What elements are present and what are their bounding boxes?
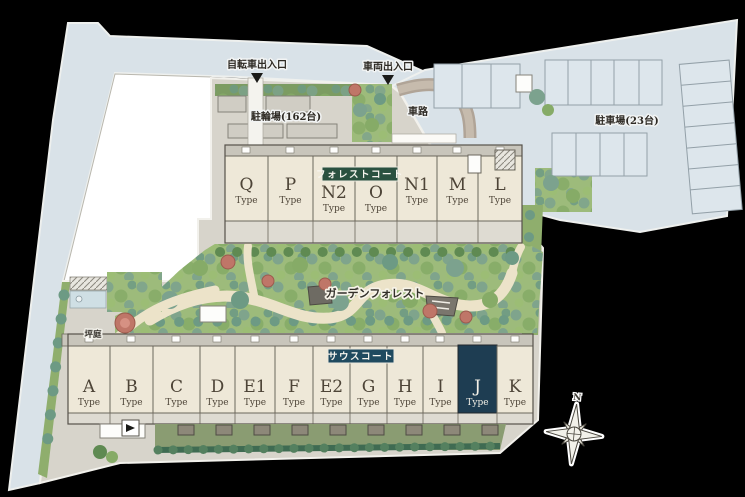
svg-text:Type: Type: [120, 398, 142, 408]
svg-text:B: B: [125, 377, 138, 397]
unit-cell-k[interactable]: K Type: [497, 346, 533, 413]
red-tree: [423, 304, 437, 318]
unit-cell-n2[interactable]: N2 Type: [313, 156, 355, 221]
terrace-block: [178, 425, 194, 435]
unit-cell-p[interactable]: P Type: [268, 156, 313, 221]
driveway-label: 車路: [408, 105, 429, 118]
unit-cell-d[interactable]: D Type: [200, 346, 235, 413]
bicycle-parking-label: 駐輪場(162台): [251, 110, 321, 123]
svg-text:Type: Type: [406, 196, 428, 206]
svg-text:I: I: [437, 377, 444, 397]
red-tree: [262, 275, 274, 287]
entrance-lobby: [200, 306, 226, 322]
svg-text:P: P: [285, 175, 296, 195]
car-parking-label: 駐車場(23台): [595, 114, 658, 127]
svg-text:Type: Type: [244, 398, 266, 408]
svg-text:Type: Type: [446, 196, 468, 206]
svg-text:Type: Type: [235, 196, 257, 206]
south-private-gardens: [100, 424, 506, 450]
bike-rack: [266, 96, 310, 112]
site-plan-drawing: Q Type P Type N2 Type O Type N1 Type M T…: [0, 0, 745, 497]
svg-text:Type: Type: [78, 398, 100, 408]
svg-text:Type: Type: [504, 398, 526, 408]
svg-text:Type: Type: [283, 398, 305, 408]
unit-cell-i[interactable]: I Type: [423, 346, 458, 413]
svg-text:サウスコート: サウスコート: [328, 352, 394, 363]
svg-text:F: F: [288, 377, 300, 397]
unit-cell-q[interactable]: Q Type: [225, 156, 268, 221]
unit-cell-a[interactable]: A Type: [68, 346, 110, 413]
svg-text:E1: E1: [243, 377, 266, 397]
tsubo-garden-label: 坪庭: [84, 329, 102, 340]
svg-text:Type: Type: [206, 398, 228, 408]
south-court-badge: サウスコート: [328, 349, 394, 363]
svg-text:Type: Type: [279, 196, 301, 206]
pedestrian-entrance-marker: [122, 420, 139, 436]
service-structure: [495, 150, 515, 170]
svg-text:H: H: [398, 377, 413, 397]
compass-north-label: N: [573, 393, 582, 404]
svg-text:D: D: [211, 377, 225, 397]
svg-text:K: K: [509, 377, 522, 397]
svg-text:E2: E2: [320, 377, 343, 397]
garden-forest-label: ガーデンフォレスト: [326, 286, 425, 300]
svg-text:G: G: [362, 377, 376, 397]
water-feature: [70, 291, 106, 308]
bicycle-entrance-label: 自転車出入口: [227, 58, 287, 71]
svg-text:N1: N1: [404, 175, 430, 195]
svg-text:Type: Type: [394, 398, 416, 408]
unit-cell-c[interactable]: C Type: [153, 346, 200, 413]
svg-text:Type: Type: [165, 398, 187, 408]
south-court-building: A Type B Type C Type D Type E1 Type F Ty…: [62, 334, 533, 424]
unit-cell-b[interactable]: B Type: [110, 346, 153, 413]
svg-text:A: A: [82, 377, 96, 397]
stair-shaft: [468, 155, 481, 173]
unit-cell-e1[interactable]: E1 Type: [235, 346, 275, 413]
svg-text:Type: Type: [429, 398, 451, 408]
svg-text:Type: Type: [466, 398, 488, 408]
svg-text:Type: Type: [489, 196, 511, 206]
svg-text:Type: Type: [365, 204, 387, 214]
svg-text:Type: Type: [323, 204, 345, 214]
svg-text:Type: Type: [320, 398, 342, 408]
forest-court-badge: フォレストコート: [316, 167, 404, 181]
unit-cell-o[interactable]: O Type: [355, 156, 397, 221]
svg-text:O: O: [369, 183, 383, 203]
unit-cell-j-highlighted[interactable]: J Type: [458, 345, 497, 413]
svg-text:M: M: [449, 175, 466, 195]
svg-text:J: J: [472, 377, 481, 397]
svg-text:L: L: [494, 175, 505, 195]
bike-rack: [218, 96, 246, 112]
unit-cell-n1[interactable]: N1 Type: [397, 156, 437, 221]
forest-court-building: Q Type P Type N2 Type O Type N1 Type M T…: [225, 145, 522, 243]
compass-rose: N: [543, 391, 605, 467]
svg-text:N2: N2: [321, 183, 347, 203]
svg-text:C: C: [170, 377, 183, 397]
unit-cell-f[interactable]: F Type: [275, 346, 313, 413]
svg-text:Type: Type: [357, 398, 379, 408]
svg-text:Q: Q: [240, 175, 254, 195]
site-plan: Q Type P Type N2 Type O Type N1 Type M T…: [0, 0, 745, 497]
red-tree: [349, 84, 361, 96]
svg-text:フォレストコート: フォレストコート: [316, 170, 404, 181]
bike-rack: [287, 124, 337, 138]
red-tree: [460, 311, 472, 323]
red-tree: [221, 255, 235, 269]
vehicle-entrance-label: 車両出入口: [363, 60, 413, 73]
guard-booth: [516, 75, 532, 92]
